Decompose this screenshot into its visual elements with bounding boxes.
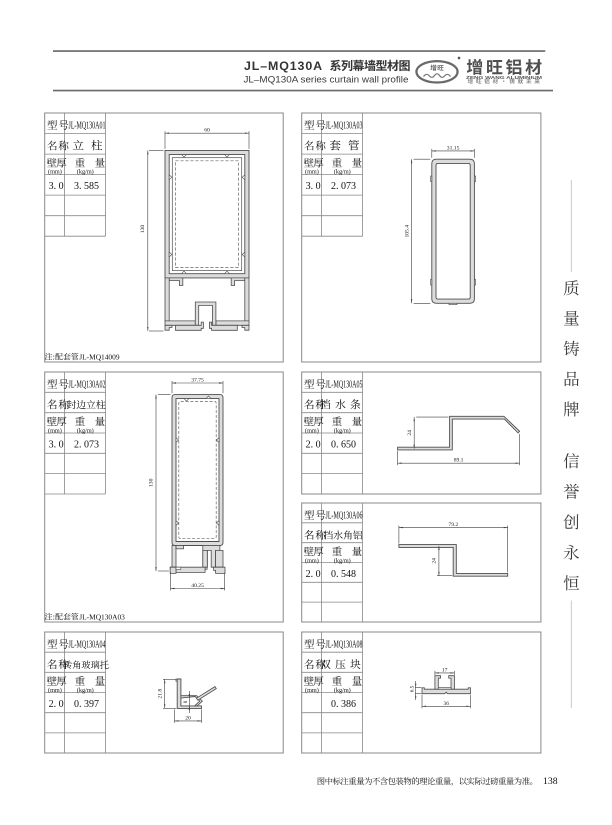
svg-text:JL–MQ130A: JL–MQ130A — [244, 59, 323, 73]
svg-text:24: 24 — [407, 430, 413, 436]
svg-text:2. 073: 2. 073 — [331, 181, 356, 192]
svg-text:130: 130 — [140, 225, 146, 234]
svg-text:JL-MQ130A02: JL-MQ130A02 — [69, 380, 106, 391]
svg-text:138: 138 — [543, 776, 558, 787]
svg-text:17: 17 — [442, 667, 448, 673]
svg-text:2. 0: 2. 0 — [306, 569, 321, 580]
svg-text:JL-MQ130A03: JL-MQ130A03 — [326, 121, 363, 132]
svg-text:JL-MQ130A04: JL-MQ130A04 — [69, 640, 106, 651]
svg-text:20: 20 — [185, 715, 191, 721]
svg-text:2. 0: 2. 0 — [306, 439, 321, 450]
svg-text:6.5: 6.5 — [409, 685, 415, 692]
svg-text:3. 0: 3. 0 — [49, 439, 64, 450]
svg-text:JL-MQ130A03: JL-MQ130A03 — [79, 613, 125, 622]
svg-text:(mm): (mm) — [305, 427, 319, 434]
svg-text:8: 8 — [183, 700, 189, 703]
svg-text:105.4: 105.4 — [404, 225, 410, 238]
svg-text:(mm): (mm) — [305, 687, 319, 694]
svg-text:0. 548: 0. 548 — [331, 569, 356, 580]
svg-text:3. 585: 3. 585 — [74, 181, 99, 192]
svg-text:(kg/m): (kg/m) — [334, 169, 351, 176]
svg-text:36: 36 — [443, 701, 449, 707]
svg-text:31.15: 31.15 — [447, 145, 460, 151]
svg-text:JL–MQ130A series curtain wall: JL–MQ130A series curtain wall profile — [244, 75, 409, 86]
svg-text:(kg/m): (kg/m) — [77, 427, 94, 434]
svg-text:60: 60 — [204, 128, 210, 134]
svg-text:(mm): (mm) — [48, 427, 62, 434]
svg-text:24: 24 — [432, 558, 438, 564]
svg-text:37.75: 37.75 — [191, 378, 204, 384]
svg-text:(kg/m): (kg/m) — [334, 687, 351, 694]
svg-text:(mm): (mm) — [48, 169, 62, 176]
svg-text:130: 130 — [149, 478, 155, 487]
svg-text:JL-MQ130A01: JL-MQ130A01 — [69, 121, 106, 132]
svg-text:0. 650: 0. 650 — [331, 439, 356, 450]
svg-text:89.1: 89.1 — [454, 458, 464, 464]
svg-text:3. 0: 3. 0 — [306, 181, 321, 192]
svg-text:3. 0: 3. 0 — [49, 181, 64, 192]
svg-text:(mm): (mm) — [48, 687, 62, 694]
svg-text:JL-MQ130A08: JL-MQ130A08 — [326, 640, 363, 651]
svg-text:2. 0: 2. 0 — [49, 699, 64, 710]
svg-text:21.8: 21.8 — [157, 689, 163, 699]
svg-text:JL-MQ130A06: JL-MQ130A06 — [326, 511, 363, 522]
svg-text:(mm): (mm) — [305, 169, 319, 176]
svg-text:(kg/m): (kg/m) — [77, 687, 94, 694]
svg-text:JL-MQ130A05: JL-MQ130A05 — [326, 380, 363, 391]
svg-text:(kg/m): (kg/m) — [334, 557, 351, 564]
svg-text:0. 386: 0. 386 — [331, 699, 356, 710]
svg-text:(kg/m): (kg/m) — [334, 427, 351, 434]
svg-text:79.2: 79.2 — [448, 522, 458, 528]
svg-text:0. 397: 0. 397 — [74, 699, 99, 710]
svg-text:(mm): (mm) — [305, 557, 319, 564]
svg-text:40.25: 40.25 — [191, 583, 204, 589]
svg-text:JL-MQ14009: JL-MQ14009 — [79, 353, 120, 362]
svg-text:2. 073: 2. 073 — [74, 439, 99, 450]
svg-text:(kg/m): (kg/m) — [77, 169, 94, 176]
